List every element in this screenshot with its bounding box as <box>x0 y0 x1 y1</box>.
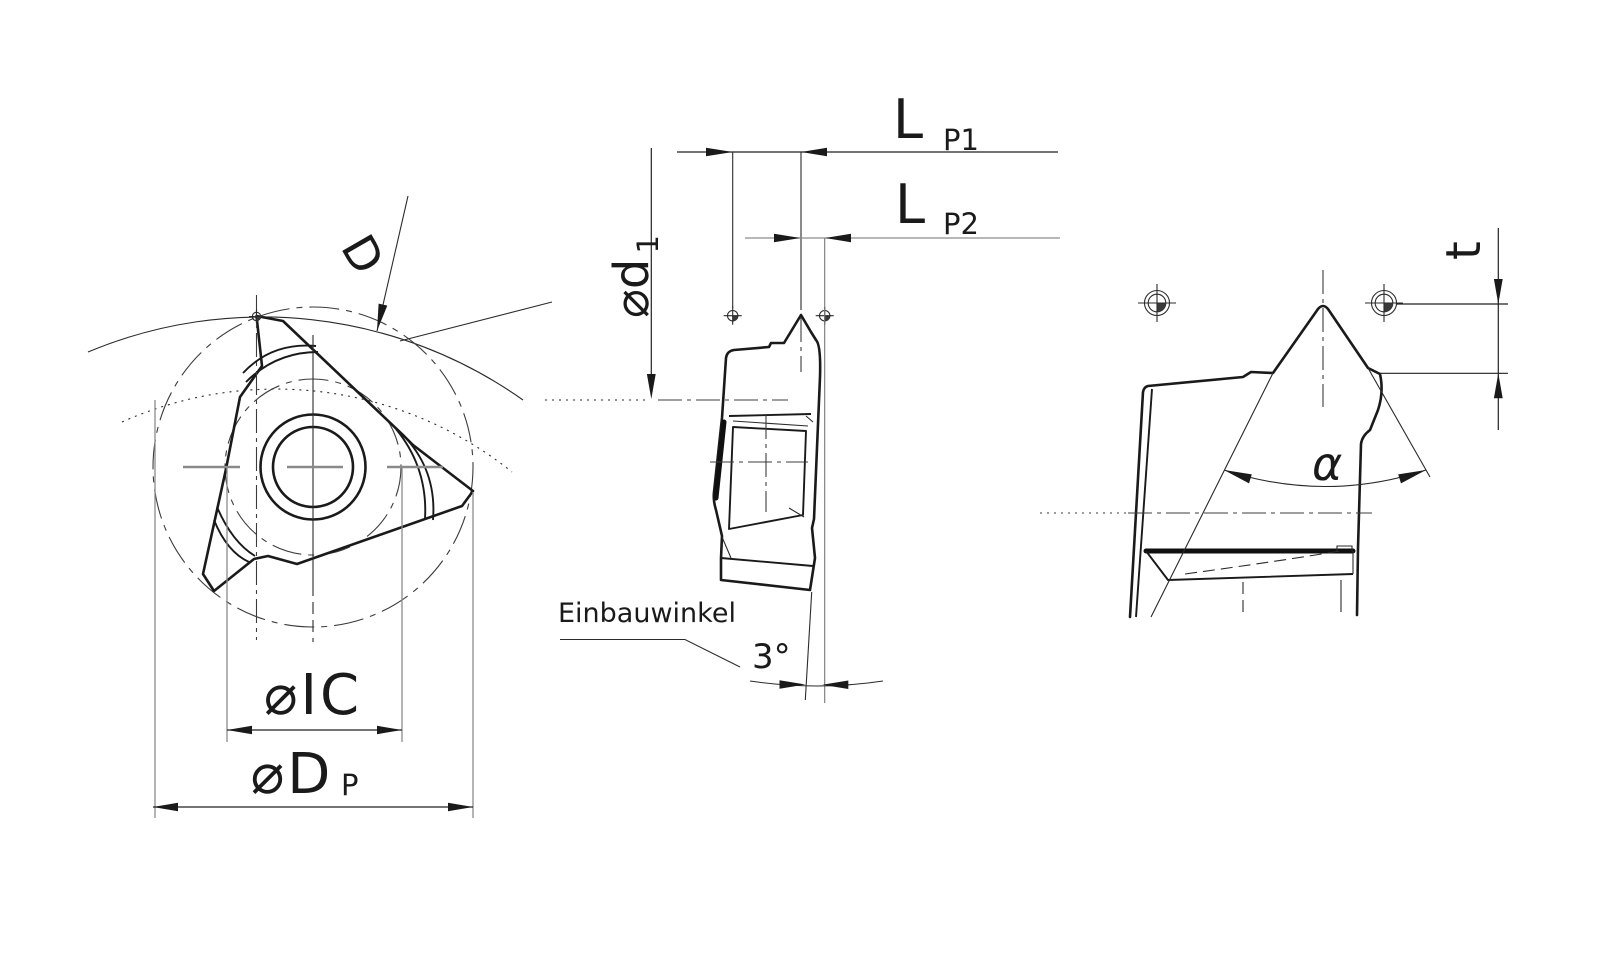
alpha-label: α <box>1312 437 1342 491</box>
insert-front-outline <box>203 316 473 591</box>
d-leader-arrow <box>377 304 387 331</box>
band-dashed-curve <box>1185 551 1340 574</box>
pocket-top-line <box>729 414 811 416</box>
front-view: D ⌀IC ⌀D P <box>88 196 552 818</box>
tilt-axis-line <box>805 592 811 700</box>
t-arrow-bottom <box>1494 373 1503 398</box>
dp-arrow-right <box>448 803 473 811</box>
lp2-label: L <box>895 173 925 236</box>
angle3-arrow-left <box>780 680 806 688</box>
einbauwinkel-leader <box>560 640 740 668</box>
side-view: L P1 L P2 ⌀d 1 3° Einbauwinkel <box>545 88 1060 703</box>
ic-arrow-right <box>377 726 402 734</box>
ic-dim-label: ⌀IC <box>264 663 362 728</box>
t-arrow-top <box>1494 279 1503 304</box>
d1-arrow <box>647 374 656 399</box>
lp1-arrow-left <box>706 148 733 156</box>
angle3-arrow-right <box>822 681 848 690</box>
thread-flank-line <box>400 302 552 341</box>
workpiece-crest-arc <box>88 317 523 400</box>
lp1-arrow-right <box>801 148 827 156</box>
lp1-extension-lines <box>733 152 801 310</box>
lp1-label: L <box>893 88 923 151</box>
lp1-sub: P1 <box>943 123 979 157</box>
pocket-top-line2 <box>733 421 808 426</box>
profile-view: α t <box>1040 228 1508 617</box>
insert-profile-outline <box>1130 306 1382 617</box>
angle-arc-3deg <box>750 681 883 686</box>
dp-dim-label: ⌀D <box>251 742 334 807</box>
target-marker-right <box>1365 284 1403 322</box>
technical-drawing-page: D ⌀IC ⌀D P <box>0 0 1600 965</box>
flank-extension-left <box>1151 373 1273 617</box>
measure-point-marker-left <box>724 307 742 325</box>
alpha-arrow-right <box>1398 470 1426 483</box>
pocket-corner-lines <box>722 416 813 558</box>
band-detail-lines <box>1337 546 1353 612</box>
lp2-arrow-left <box>774 234 801 242</box>
tip-target-marker <box>249 309 264 324</box>
angle3-value: 3° <box>752 637 791 677</box>
ic-arrow-left <box>227 726 252 734</box>
lp2-sub: P2 <box>943 207 979 241</box>
d-label: D <box>330 226 394 284</box>
pocket-outline <box>729 427 806 529</box>
insert-drawing-canvas: D ⌀IC ⌀D P <box>0 0 1600 965</box>
insert-side-outline <box>714 315 820 590</box>
d1-label: ⌀d 1 <box>604 235 665 318</box>
t-label: t <box>1436 241 1492 260</box>
lp2-arrow-right <box>825 234 851 242</box>
groove-arc-bottom-1 <box>214 520 249 562</box>
left-edge-inner-line <box>1136 389 1152 617</box>
target-marker-left <box>1138 284 1176 322</box>
flank-extension-right <box>1368 368 1430 477</box>
dp-dim-sub: P <box>341 768 359 802</box>
alpha-arrow-left <box>1224 470 1252 483</box>
workpiece-root-arc <box>122 389 512 472</box>
dp-arrow-left <box>153 803 178 811</box>
bottom-band-line <box>721 558 813 566</box>
groove-arc-bottom-2 <box>217 507 255 556</box>
einbauwinkel-label: Einbauwinkel <box>558 598 736 629</box>
